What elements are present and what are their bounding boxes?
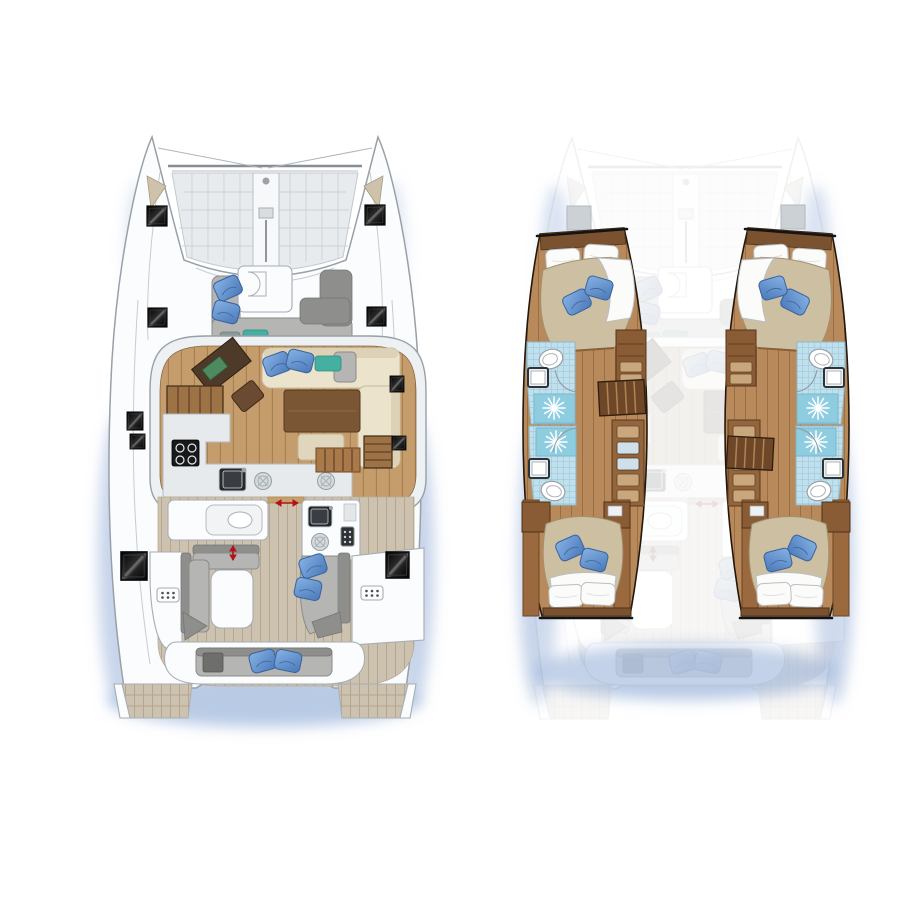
ghost-bow-hatch-port bbox=[567, 206, 591, 230]
foredeck-table bbox=[238, 266, 292, 312]
hull-steps-port bbox=[598, 380, 646, 416]
transom-step-starboard bbox=[338, 684, 416, 718]
hull-steps-starboard bbox=[726, 436, 774, 470]
aft-bathroom bbox=[529, 426, 577, 505]
faucet-icon bbox=[242, 468, 247, 473]
forward-bathroom bbox=[527, 342, 577, 424]
hatch-mid-port bbox=[148, 308, 167, 327]
storage-slats bbox=[316, 448, 360, 472]
aft-hatch-starboard bbox=[386, 552, 409, 578]
aft-hatch-port bbox=[121, 552, 147, 580]
aft-sink bbox=[228, 512, 252, 528]
hatch-fore-port bbox=[147, 206, 167, 226]
ghost-bow-hatch-starboard bbox=[781, 205, 805, 229]
port-hull bbox=[522, 228, 647, 616]
window-port-1 bbox=[127, 412, 143, 430]
aft-cabin bbox=[522, 500, 631, 616]
window-starboard-2 bbox=[392, 436, 406, 450]
aft-bed-headboard bbox=[543, 608, 631, 616]
window-port-2 bbox=[130, 434, 145, 449]
deck-plan-view bbox=[109, 137, 426, 718]
aft-bench bbox=[165, 642, 365, 684]
transom-step-port bbox=[114, 684, 192, 718]
grill bbox=[341, 527, 354, 546]
bow-trampoline bbox=[172, 173, 358, 271]
vent-port bbox=[157, 588, 179, 602]
vent-starboard bbox=[361, 586, 383, 600]
windlass-icon bbox=[263, 178, 270, 185]
companionway-stairs-starboard bbox=[364, 436, 392, 468]
companionway-stairs-port bbox=[167, 386, 223, 418]
floorplan-stage bbox=[0, 0, 900, 900]
sliding-door-sill bbox=[268, 497, 304, 503]
saloon bbox=[150, 336, 426, 512]
cockpit-table bbox=[211, 570, 253, 628]
starboard-hull bbox=[725, 228, 850, 616]
wardrobe-drawers bbox=[612, 420, 644, 506]
hatch-fore-starboard bbox=[365, 205, 385, 225]
window-starboard-1 bbox=[390, 376, 404, 392]
wardrobe-forward bbox=[616, 330, 646, 386]
cockpit-lounge-port bbox=[181, 545, 259, 640]
catamaran-floorplan-canvas bbox=[0, 0, 900, 900]
wet-bar bbox=[302, 500, 360, 560]
cockpit bbox=[114, 497, 424, 718]
hatch-mid-starboard bbox=[367, 307, 386, 326]
